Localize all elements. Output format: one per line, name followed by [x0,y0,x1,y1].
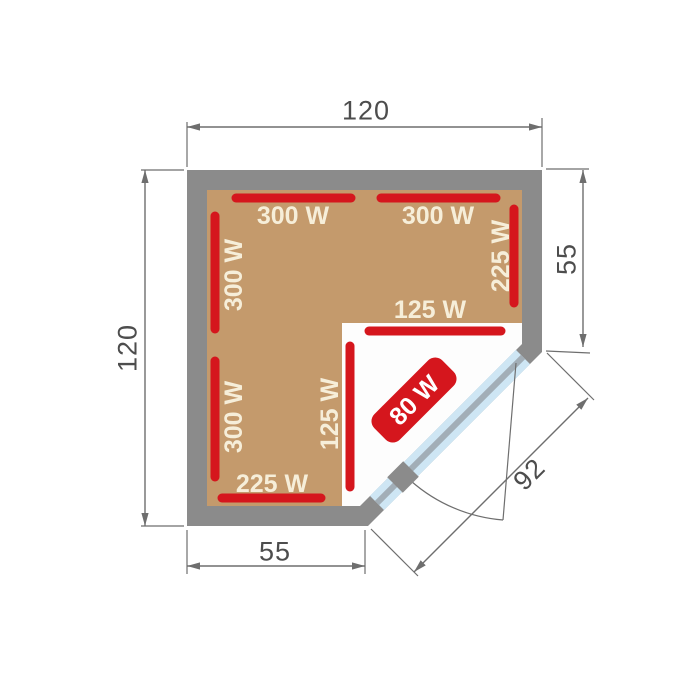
door-handle [395,469,411,485]
heater-label-left-upper: 300 W [220,238,248,311]
heater-label-bottom: 225 W [236,470,309,498]
sauna-floor-plan-diagram: 80 W 300 W 300 W 225 W 300 W 300 W 125 W… [0,0,700,700]
door-dim-extension-top [547,353,594,400]
heater-label-right-wall: 225 W [487,219,515,292]
door-dim-extension-bottom [371,529,418,576]
heater-label-notch-side: 125 W [316,377,344,450]
right-dim-label: 55 [551,243,581,275]
door-swing-arc [411,481,503,520]
heater-label-left-lower: 300 W [220,380,248,453]
left-dim-label: 120 [112,324,142,372]
top-dim-label: 120 [342,95,390,125]
heater-label-top-left: 300 W [257,202,330,230]
floor-plan-svg: 80 W 300 W 300 W 225 W 300 W 300 W 125 W… [0,0,700,700]
door-dim-label: 92 [507,452,551,496]
heater-label-notch-top: 125 W [394,296,467,324]
right-dim-extension-bottom [546,351,590,353]
bottom-dim-label: 55 [259,536,291,566]
heater-label-top-right: 300 W [402,202,475,230]
